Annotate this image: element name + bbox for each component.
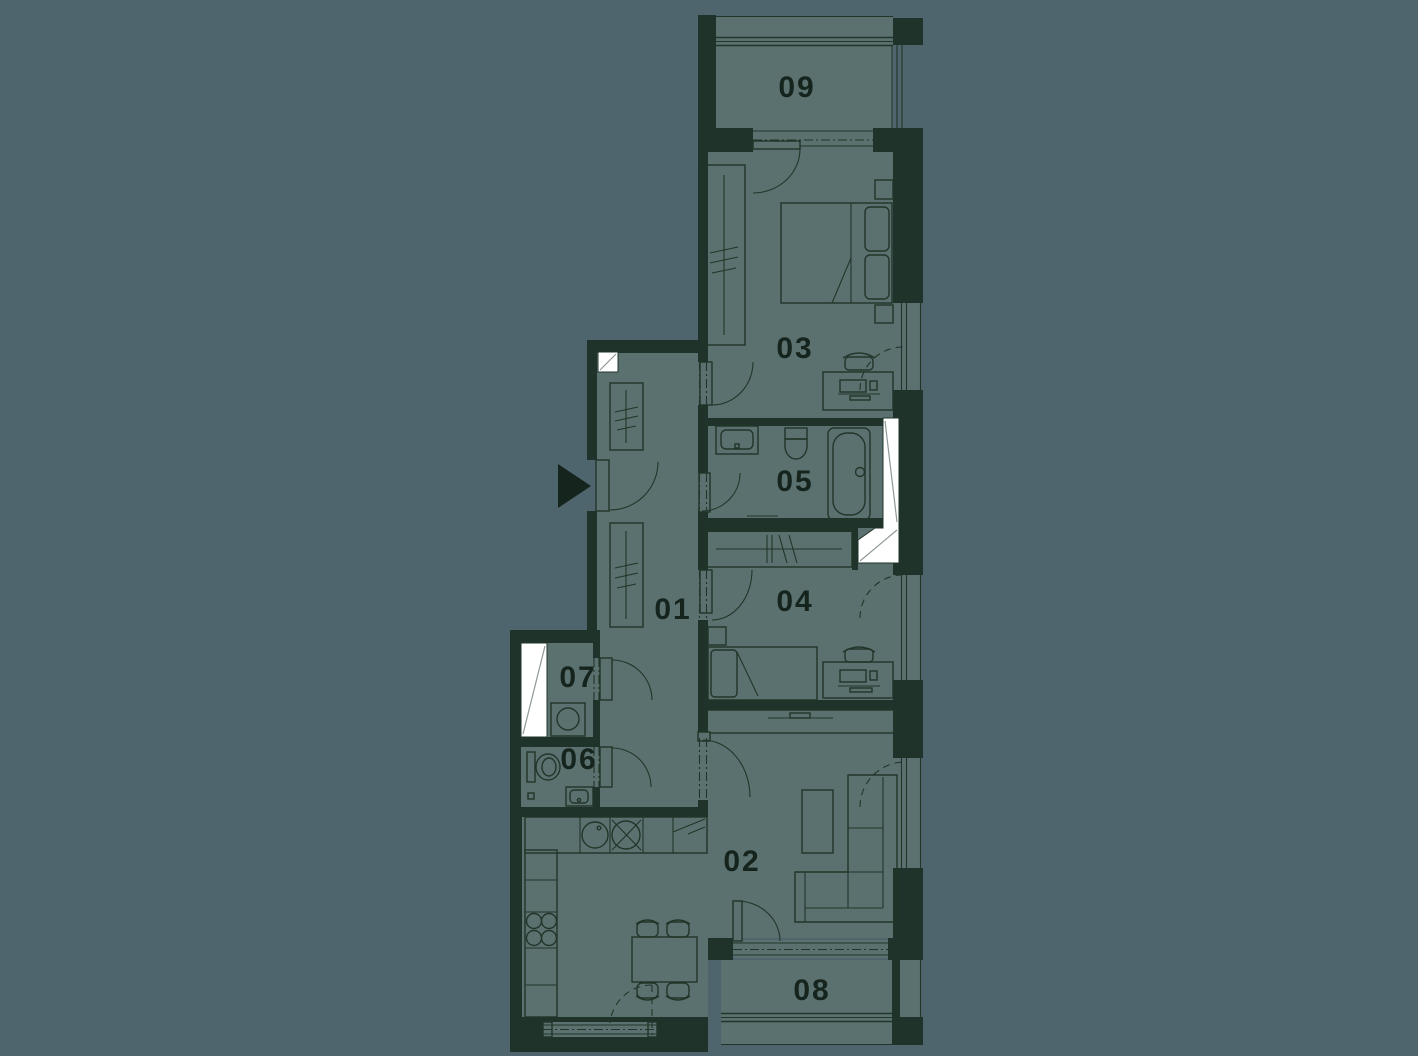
room-03-label: 03 <box>776 332 813 365</box>
floor-plan-page: 09 03 05 01 04 07 06 02 08 <box>0 0 1418 1056</box>
room-08-label: 08 <box>793 974 830 1007</box>
room-09-label: 09 <box>778 71 815 104</box>
room-02-label: 02 <box>723 845 760 878</box>
room-05-label: 05 <box>776 465 813 498</box>
room-01-label: 01 <box>654 593 691 626</box>
floor-plan-svg: 09 03 05 01 04 07 06 02 08 <box>0 0 1418 1056</box>
room-04-label: 04 <box>776 585 813 618</box>
room-07-label: 07 <box>559 661 596 694</box>
room-06-label: 06 <box>560 743 597 776</box>
